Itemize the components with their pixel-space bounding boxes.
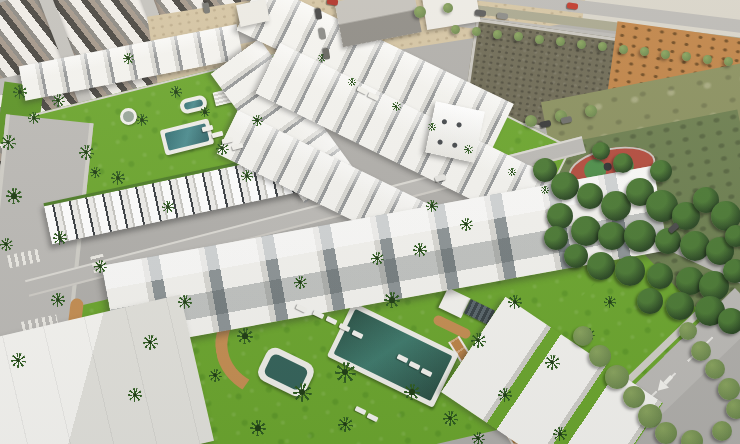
palm-tree: [170, 86, 182, 98]
median-tree: [598, 42, 607, 51]
palm-tree: [52, 94, 65, 107]
palm-tree: [428, 123, 436, 131]
street-tree: [623, 386, 645, 408]
palm-tree: [498, 388, 512, 402]
palm-tree: [178, 295, 192, 309]
park-tree: [655, 228, 681, 254]
palm-tree: [413, 243, 427, 257]
park-tree: [587, 252, 615, 280]
street-tree: [589, 345, 611, 367]
sun-lounger: [396, 353, 408, 362]
median-tree: [661, 50, 670, 59]
park-tree: [571, 216, 601, 246]
palm-tree: [200, 107, 210, 117]
palm-tree: [90, 167, 101, 178]
palm-tree: [294, 276, 307, 289]
sun-lounger: [356, 85, 368, 94]
park-tree: [615, 256, 645, 286]
street-tree: [655, 422, 677, 444]
palm-tree: [252, 115, 263, 126]
palm-tree: [250, 420, 266, 436]
street-tree: [718, 378, 740, 400]
car: [566, 2, 578, 9]
palm-tree: [237, 328, 253, 344]
sun-lounger: [221, 136, 233, 144]
median-tree: [703, 55, 712, 64]
median-tree: [556, 37, 565, 46]
palm-tree: [404, 384, 420, 400]
sun-lounger: [420, 367, 432, 376]
palm-tree: [136, 114, 148, 126]
palm-tree: [162, 201, 174, 213]
median-tree: [535, 35, 544, 44]
median-tree: [472, 27, 481, 36]
palm-tree: [1, 135, 16, 150]
park-tree: [544, 226, 568, 250]
palm-tree: [460, 218, 473, 231]
palm-tree: [128, 388, 142, 402]
palm-tree: [143, 335, 158, 350]
palm-tree: [28, 112, 40, 124]
street-tree: [525, 115, 537, 127]
street-tree: [681, 430, 703, 444]
palm-tree: [471, 333, 486, 348]
palm-tree: [79, 145, 94, 160]
park-tree: [647, 263, 673, 289]
park-tree: [718, 308, 740, 334]
median-tree: [493, 30, 502, 39]
props-layer: [0, 0, 740, 444]
palm-tree: [123, 53, 134, 64]
palm-tree: [335, 362, 356, 383]
sun-lounger: [354, 405, 366, 414]
palm-tree: [472, 432, 485, 444]
car: [434, 174, 446, 182]
car: [314, 8, 322, 20]
palm-tree: [241, 170, 253, 182]
street-tree: [605, 365, 629, 389]
palm-tree: [51, 293, 65, 307]
palm-tree: [553, 427, 567, 441]
palm-tree: [541, 186, 549, 194]
median-tree: [514, 32, 523, 41]
median-tree: [451, 25, 460, 34]
park-tree: [592, 142, 610, 160]
park-tree: [547, 203, 573, 229]
street-tree: [443, 3, 453, 13]
street-tree: [705, 359, 725, 379]
park-tree: [598, 222, 626, 250]
street-tree: [585, 105, 597, 117]
park-tree: [624, 220, 656, 252]
street-tree: [414, 6, 426, 18]
park-tree: [725, 225, 740, 247]
car: [318, 28, 326, 40]
park-tree: [613, 153, 633, 173]
park-tree: [551, 172, 579, 200]
car: [474, 9, 486, 16]
sun-lounger: [351, 329, 363, 338]
palm-tree: [464, 145, 473, 154]
palm-tree: [11, 353, 26, 368]
sun-lounger: [366, 412, 378, 421]
median-tree: [640, 47, 649, 56]
park-tree: [666, 292, 694, 320]
sun-lounger: [231, 142, 243, 150]
palm-tree: [338, 417, 353, 432]
palm-tree: [0, 238, 13, 251]
sun-lounger: [367, 91, 379, 100]
park-tree: [637, 288, 663, 314]
palm-tree: [6, 188, 22, 204]
palm-tree: [392, 102, 401, 111]
sun-lounger: [325, 315, 337, 324]
street-tree: [712, 421, 732, 441]
sun-lounger: [201, 124, 213, 132]
park-tree: [650, 160, 672, 182]
palm-tree: [348, 78, 356, 86]
sun-lounger: [408, 360, 420, 369]
palm-tree: [384, 292, 400, 308]
median-tree: [577, 40, 586, 49]
park-tree: [564, 244, 588, 268]
park-tree: [723, 259, 740, 283]
palm-tree: [371, 252, 384, 265]
palm-tree: [545, 355, 560, 370]
street-tree: [726, 399, 740, 419]
palm-tree: [53, 231, 67, 245]
sun-lounger: [338, 322, 350, 331]
park-tree: [577, 183, 603, 209]
park-tree: [680, 231, 710, 261]
car: [560, 116, 572, 124]
palm-tree: [508, 295, 522, 309]
car: [202, 2, 210, 14]
sun-lounger: [211, 130, 223, 138]
palm-tree: [604, 296, 616, 308]
aerial-render-scene: [0, 0, 740, 444]
street-tree: [679, 322, 697, 340]
street-tree: [573, 326, 593, 346]
car: [539, 120, 551, 128]
street-tree: [691, 341, 711, 361]
median-tree: [724, 57, 733, 66]
palm-tree: [508, 168, 516, 176]
median-tree: [619, 45, 628, 54]
car: [496, 12, 508, 19]
palm-tree: [111, 171, 125, 185]
palm-tree: [94, 260, 107, 273]
palm-tree: [426, 200, 438, 212]
palm-tree: [293, 383, 312, 402]
car: [322, 48, 330, 60]
sun-lounger: [312, 309, 324, 318]
sun-lounger: [295, 303, 307, 312]
car: [326, 0, 338, 6]
palm-tree: [13, 85, 27, 99]
palm-tree: [443, 411, 458, 426]
median-tree: [682, 52, 691, 61]
palm-tree: [209, 369, 222, 382]
